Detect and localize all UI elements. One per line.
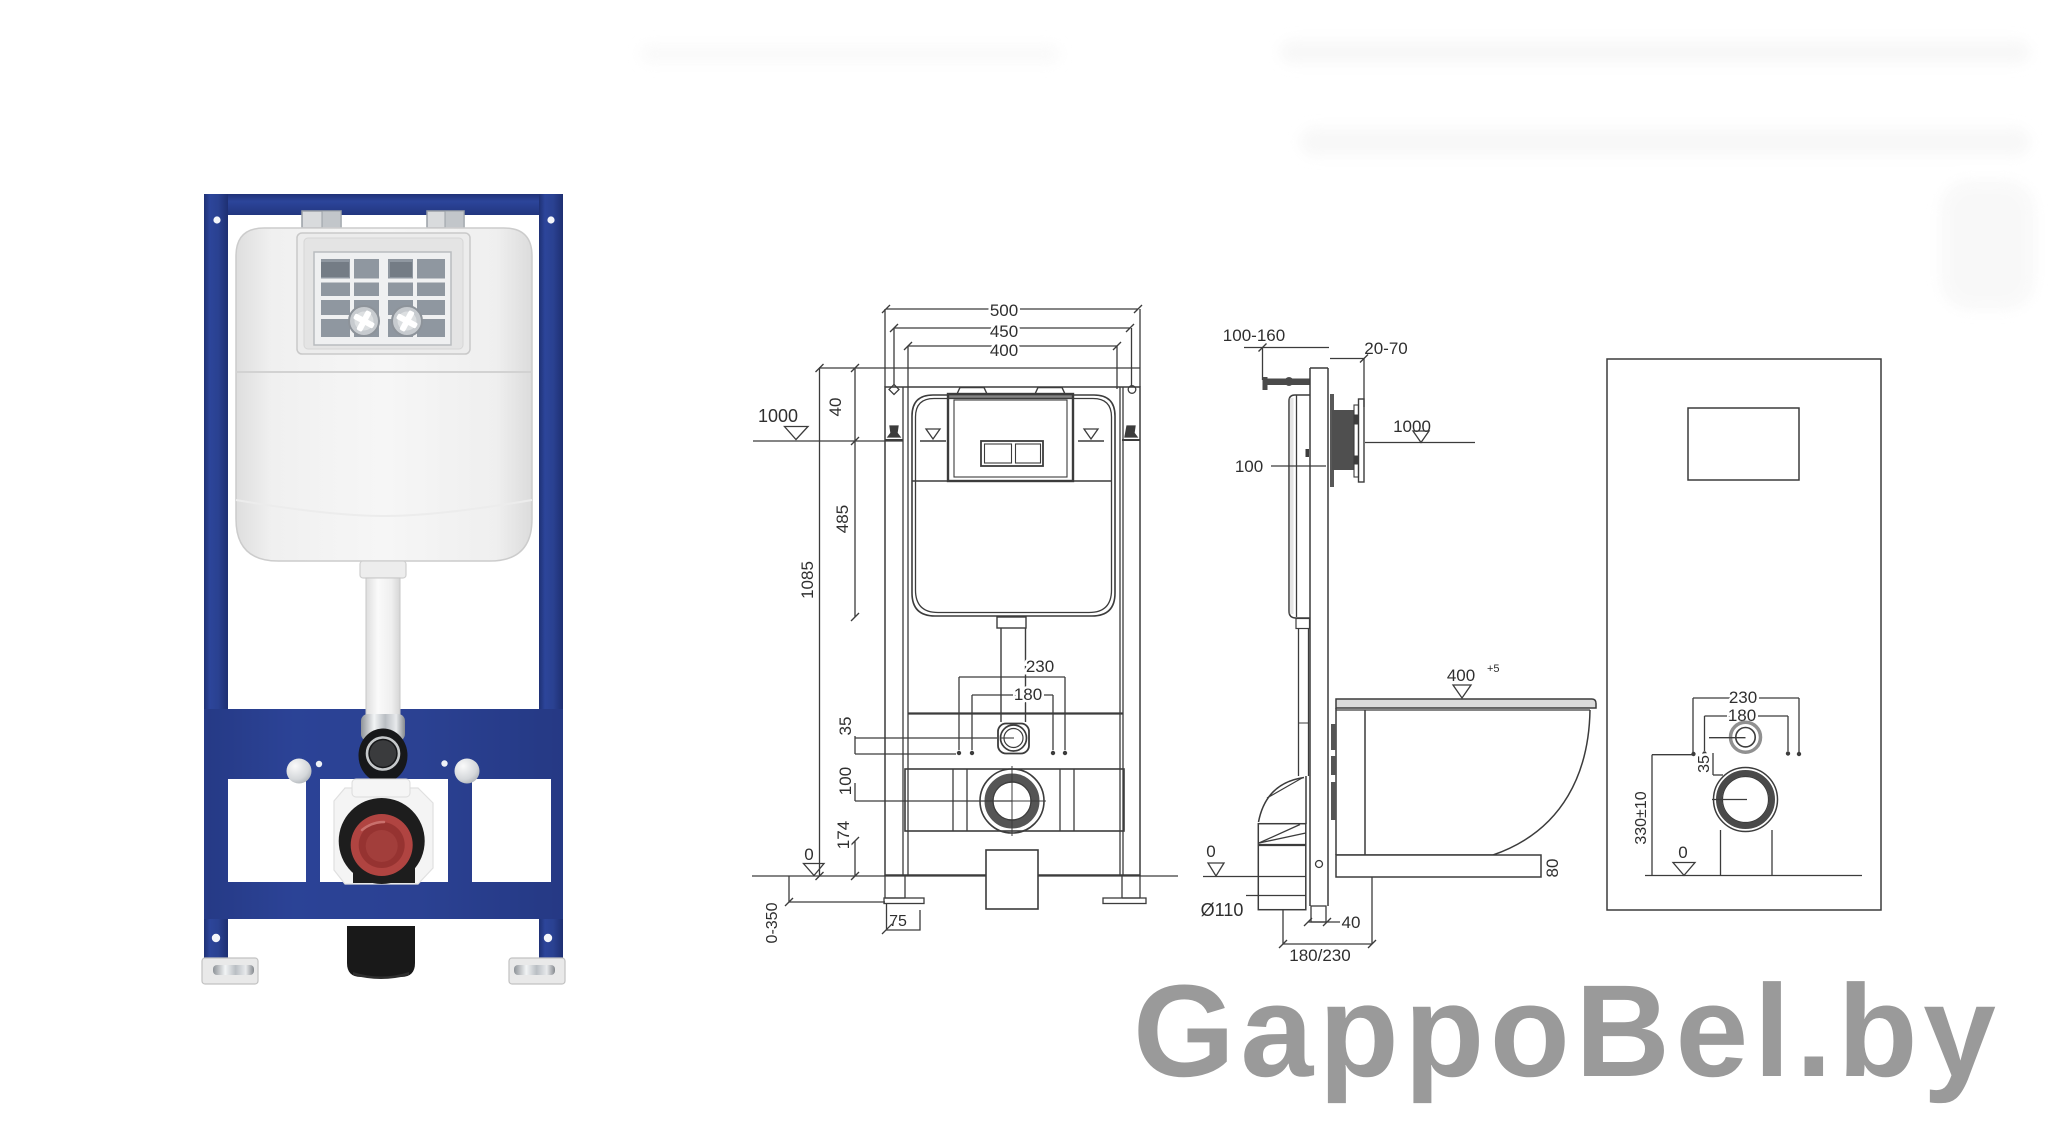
svg-text:230: 230 bbox=[1729, 688, 1757, 707]
svg-text:0: 0 bbox=[1678, 843, 1687, 862]
svg-text:1085: 1085 bbox=[798, 561, 817, 599]
svg-text:1000: 1000 bbox=[758, 406, 798, 426]
svg-text:100-160: 100-160 bbox=[1223, 326, 1285, 345]
svg-text:230: 230 bbox=[1026, 657, 1054, 676]
svg-text:+5: +5 bbox=[1487, 663, 1500, 675]
svg-text:100: 100 bbox=[836, 767, 855, 795]
svg-text:80: 80 bbox=[1543, 859, 1562, 878]
svg-text:20-70: 20-70 bbox=[1364, 339, 1407, 358]
svg-text:35: 35 bbox=[836, 717, 855, 736]
svg-text:GappoBel.by: GappoBel.by bbox=[1133, 957, 2001, 1104]
svg-text:40: 40 bbox=[1342, 913, 1361, 932]
svg-text:485: 485 bbox=[833, 505, 852, 533]
svg-text:Ø110: Ø110 bbox=[1201, 900, 1244, 920]
svg-text:0: 0 bbox=[1206, 842, 1215, 861]
svg-text:0-350: 0-350 bbox=[764, 902, 781, 943]
svg-text:1000: 1000 bbox=[1393, 417, 1431, 436]
svg-text:75: 75 bbox=[889, 913, 907, 930]
svg-text:400: 400 bbox=[990, 341, 1018, 360]
svg-text:500: 500 bbox=[990, 301, 1018, 320]
svg-text:180: 180 bbox=[1014, 685, 1042, 704]
svg-text:40: 40 bbox=[826, 398, 845, 417]
svg-text:400: 400 bbox=[1447, 666, 1475, 685]
svg-text:0: 0 bbox=[804, 845, 813, 864]
svg-text:174: 174 bbox=[834, 821, 853, 849]
svg-text:100: 100 bbox=[1235, 457, 1263, 476]
svg-text:450: 450 bbox=[990, 322, 1018, 341]
svg-text:35: 35 bbox=[1696, 755, 1713, 773]
svg-text:330±10: 330±10 bbox=[1633, 791, 1650, 844]
